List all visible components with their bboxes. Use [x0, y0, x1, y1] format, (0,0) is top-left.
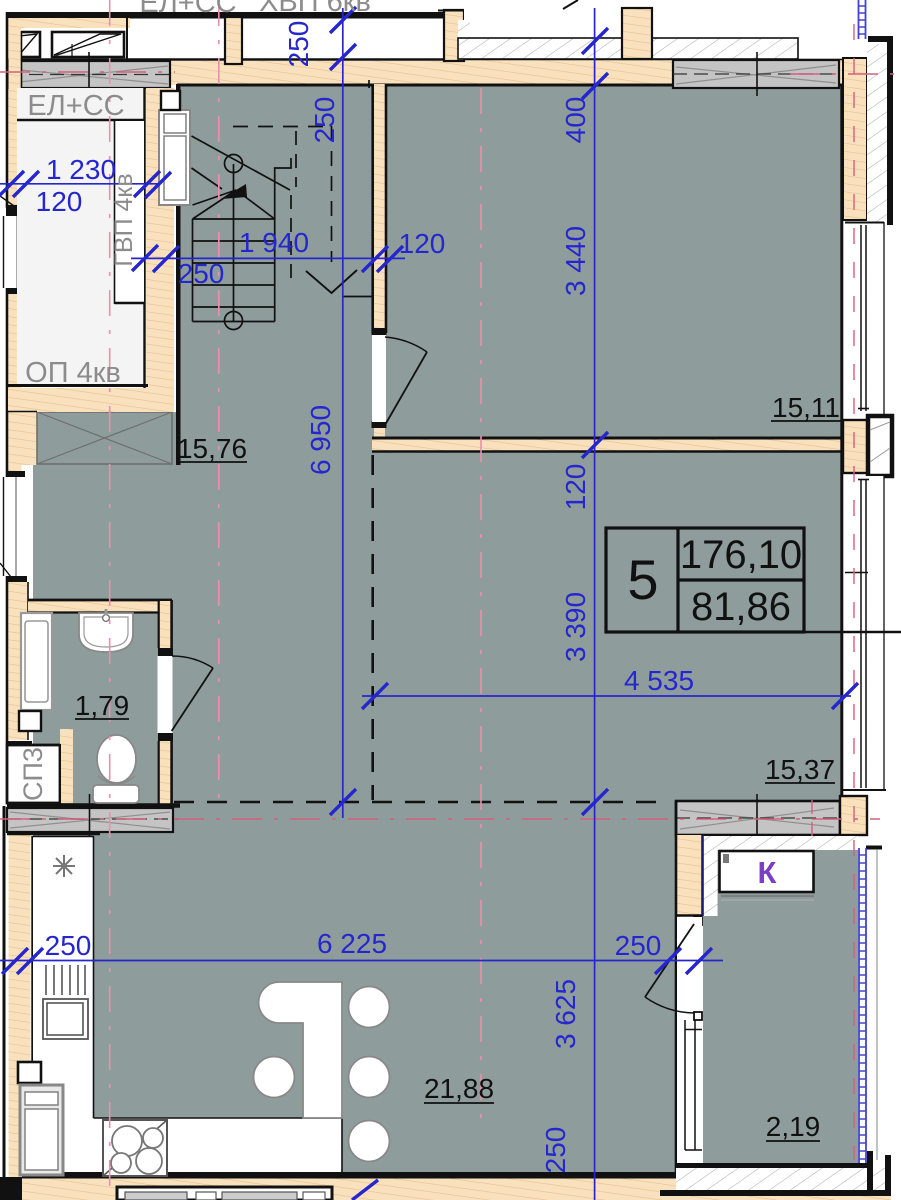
svg-text:15,76: 15,76: [177, 433, 247, 464]
svg-text:176,10: 176,10: [680, 533, 802, 577]
svg-text:250: 250: [283, 21, 314, 68]
svg-text:ГВП 4кв: ГВП 4кв: [110, 173, 138, 266]
svg-text:400: 400: [560, 97, 591, 144]
svg-text:120: 120: [36, 186, 83, 217]
svg-text:250: 250: [45, 930, 92, 961]
svg-text:К: К: [758, 855, 777, 890]
svg-text:3 390: 3 390: [560, 592, 591, 662]
svg-text:5: 5: [627, 548, 658, 611]
svg-text:2,19: 2,19: [766, 1111, 821, 1142]
svg-text:3 440: 3 440: [560, 226, 591, 296]
svg-text:1 230: 1 230: [46, 154, 116, 185]
svg-text:15,11: 15,11: [772, 392, 840, 423]
svg-text:250: 250: [615, 930, 662, 961]
svg-text:21,88: 21,88: [424, 1073, 494, 1104]
svg-text:ХВП 6кв: ХВП 6кв: [259, 0, 371, 18]
svg-text:4 535: 4 535: [624, 665, 694, 696]
svg-text:6 950: 6 950: [305, 405, 336, 475]
svg-text:СП3: СП3: [18, 747, 48, 801]
svg-text:1 940: 1 940: [239, 227, 309, 258]
svg-text:15,37: 15,37: [765, 754, 835, 785]
svg-text:250: 250: [178, 258, 225, 289]
svg-text:ОП 4кв: ОП 4кв: [25, 357, 121, 389]
svg-text:81,86: 81,86: [691, 585, 791, 629]
svg-text:ЕЛ+СС: ЕЛ+СС: [27, 90, 124, 122]
svg-text:6 225: 6 225: [317, 928, 387, 959]
svg-text:120: 120: [399, 228, 446, 259]
svg-text:3 625: 3 625: [550, 979, 581, 1049]
svg-text:250: 250: [309, 97, 340, 144]
svg-text:ЕЛ+СС: ЕЛ+СС: [139, 0, 236, 19]
svg-text:250: 250: [540, 1127, 571, 1174]
svg-text:1,79: 1,79: [75, 690, 130, 721]
svg-text:120: 120: [560, 464, 591, 511]
